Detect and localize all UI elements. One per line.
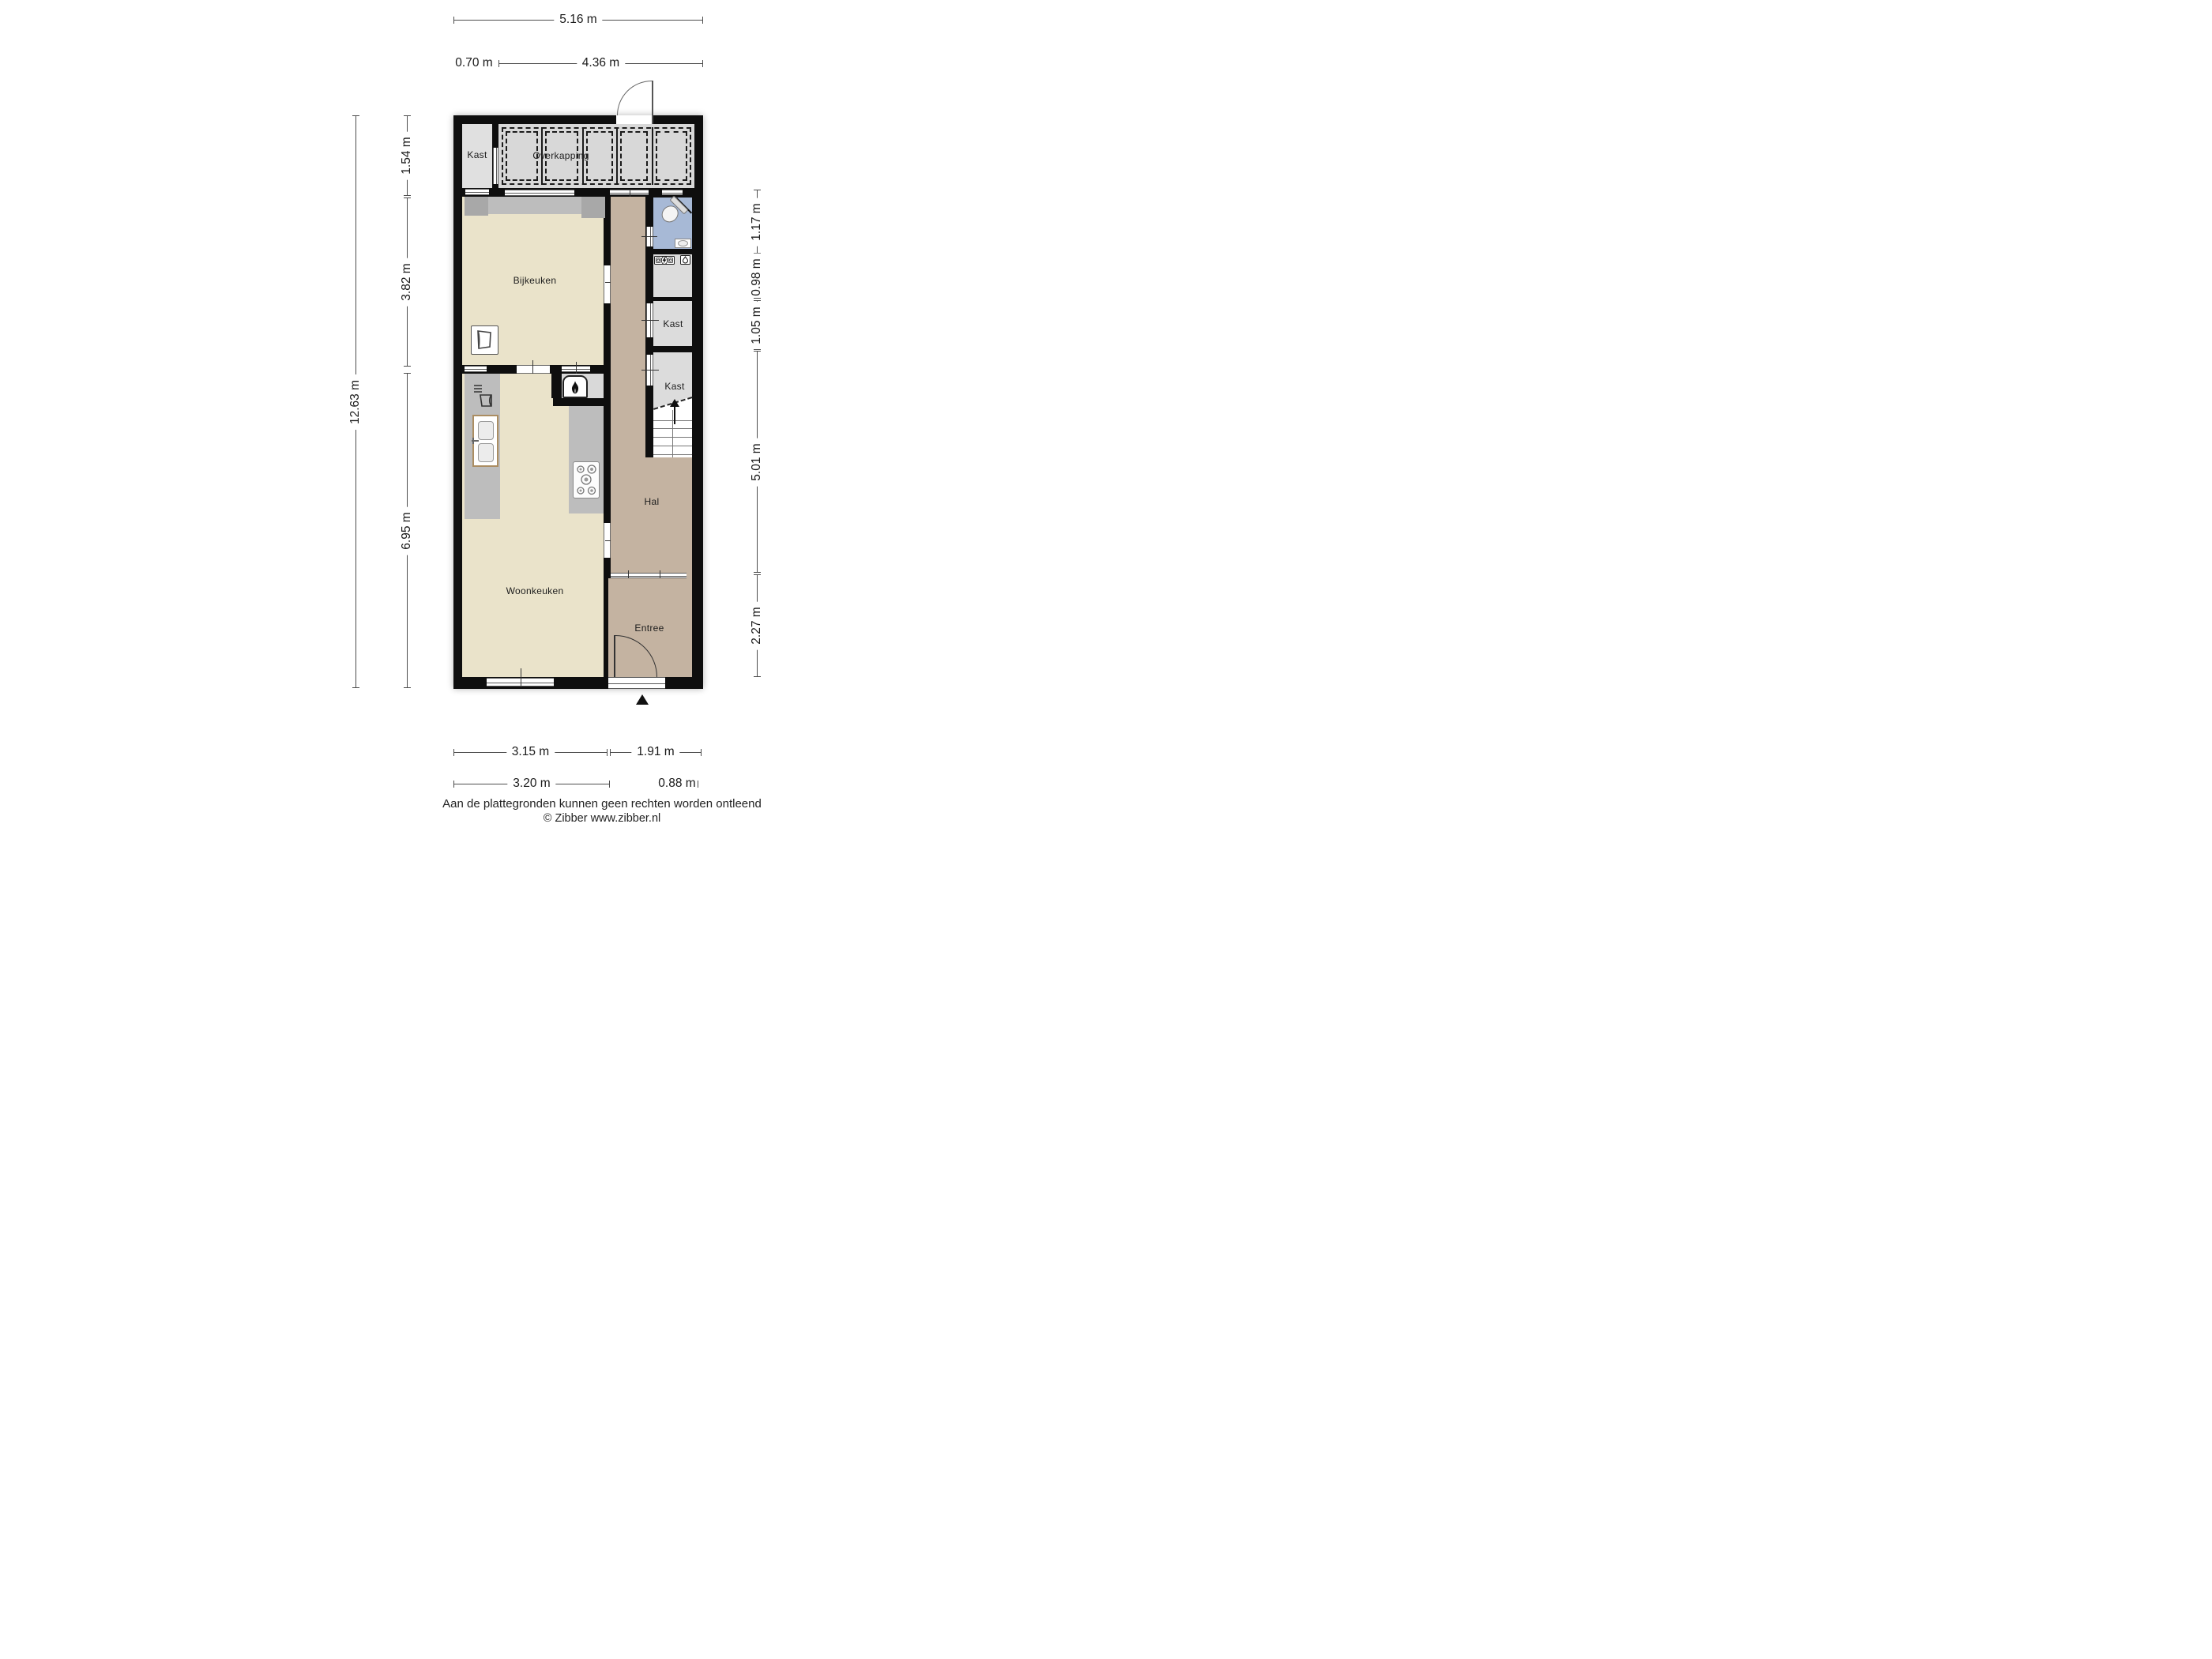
fireplace-icon — [562, 375, 588, 398]
dim-label: 12.63 m — [348, 374, 363, 429]
wall — [553, 398, 604, 406]
room-label-woonkeuken: Woonkeuken — [506, 585, 564, 596]
sink-basin — [478, 443, 494, 462]
door-bijkeuken-woonkeuken — [517, 365, 550, 374]
door-tick — [641, 236, 657, 237]
dim-left-woonkeuken: 6.95 m — [407, 373, 408, 688]
footer-credit: © Zibber www.zibber.nl — [365, 811, 839, 826]
footer-disclaimer: Aan de plattegronden kunnen geen rechten… — [365, 796, 839, 811]
room-label-hal: Hal — [645, 496, 660, 507]
overkapping-panel — [656, 131, 687, 181]
dim-bottom-woonkeuken-outer: 3.20 m — [453, 784, 610, 784]
window-overkapping-toilet — [662, 190, 683, 195]
water-meter-icon — [680, 255, 690, 265]
dim-left-total: 12.63 m — [355, 115, 356, 688]
gas-hob-icon — [573, 461, 600, 498]
room-label-bijkeuken: Bijkeuken — [513, 275, 557, 286]
wall — [551, 374, 562, 398]
dim-right-kast: 1.05 m — [757, 300, 758, 350]
floorplan-page: 5.16 m 0.70 m 4.36 m 12.63 m 1.54 m 3.82… — [0, 0, 1106, 829]
washing-machine-icon — [471, 325, 498, 355]
sink-basin — [478, 421, 494, 440]
dim-top-total: 5.16 m — [453, 20, 703, 21]
dim-right-entree: 2.27 m — [757, 574, 758, 677]
overkapping-post — [652, 127, 653, 185]
dishwasher-icon — [469, 379, 498, 411]
dim-left-overkapping: 1.54 m — [407, 115, 408, 196]
dim-right-meter: 0.98 m — [757, 255, 758, 299]
garden-door-opening — [616, 115, 652, 124]
dim-label: 5.16 m — [554, 13, 602, 27]
dim-right-toilet: 1.17 m — [757, 190, 758, 254]
dim-label: 5.01 m — [750, 438, 764, 486]
dim-label: 2.27 m — [750, 601, 764, 649]
door-tick — [641, 320, 659, 321]
room-label-kast-top-left: Kast — [467, 149, 487, 160]
dim-label: 3.82 m — [400, 258, 414, 306]
room-label-overkapping: Overkapping — [532, 150, 589, 161]
entrance-marker-icon — [636, 694, 649, 705]
sink-tap — [472, 438, 474, 444]
garden-door-leaf — [652, 81, 653, 124]
basin-bowl — [678, 240, 688, 246]
dim-top-kast: 0.70 m — [453, 56, 495, 70]
dim-label: 6.95 m — [400, 506, 414, 555]
dim-bottom-entree: 1.91 m — [610, 752, 702, 753]
room-label-kast-lower: Kast — [664, 381, 684, 392]
dim-label: 1.54 m — [400, 131, 414, 179]
dim-right-hal: 5.01 m — [757, 351, 758, 573]
garden-door-swing-arc — [617, 81, 652, 115]
room-label-entree: Entree — [634, 623, 664, 634]
bijkeuken-counter-dark-right — [581, 197, 605, 218]
dim-label: 1.17 m — [750, 197, 764, 246]
front-door-opening — [608, 677, 665, 689]
dim-label: 4.36 m — [577, 56, 625, 70]
stairs-center-line — [672, 410, 673, 457]
dim-left-bijkeuken: 3.82 m — [407, 197, 408, 367]
window-tick — [521, 668, 521, 687]
dim-label: 0.98 m — [750, 253, 764, 301]
overkapping-post — [616, 127, 618, 185]
door-tick — [641, 370, 659, 371]
room-label-kast-upper: Kast — [663, 318, 683, 329]
window-overkapping-bijkeuken — [505, 190, 574, 196]
floorplan: Kast Overkapping Bijkeuken — [453, 115, 703, 689]
dim-label: 3.20 m — [507, 777, 555, 791]
dim-label: 3.15 m — [506, 745, 555, 759]
dim-top-overkapping: 4.36 m — [498, 63, 703, 64]
stairs-up-arrow-head — [670, 399, 679, 407]
partition-hal-entree — [611, 573, 687, 578]
overkapping-panel — [586, 131, 613, 181]
stairs-up-arrow-icon — [674, 406, 675, 424]
dim-label: 1.05 m — [750, 301, 764, 349]
dim-label: 1.91 m — [631, 745, 679, 759]
door-bijkeuken-hal — [604, 265, 611, 303]
kitchen-sink-icon — [472, 415, 498, 467]
footer: Aan de plattegronden kunnen geen rechten… — [365, 796, 839, 826]
hand-basin-icon — [675, 239, 691, 248]
dim-label: 0.88 m — [653, 777, 701, 791]
dim-bottom-door: 0.88 m — [656, 784, 698, 784]
overkapping-panel — [620, 131, 648, 181]
electric-meter-icon — [654, 255, 675, 265]
window-bijkeuken-woonkeuken — [465, 366, 487, 372]
window-kast-overkapping — [493, 148, 498, 184]
room-hal-lower — [611, 457, 692, 578]
bijkeuken-counter-dark-left — [465, 197, 488, 216]
window-kast-bijkeuken — [465, 189, 489, 195]
dim-bottom-woonkeuken: 3.15 m — [453, 752, 608, 753]
